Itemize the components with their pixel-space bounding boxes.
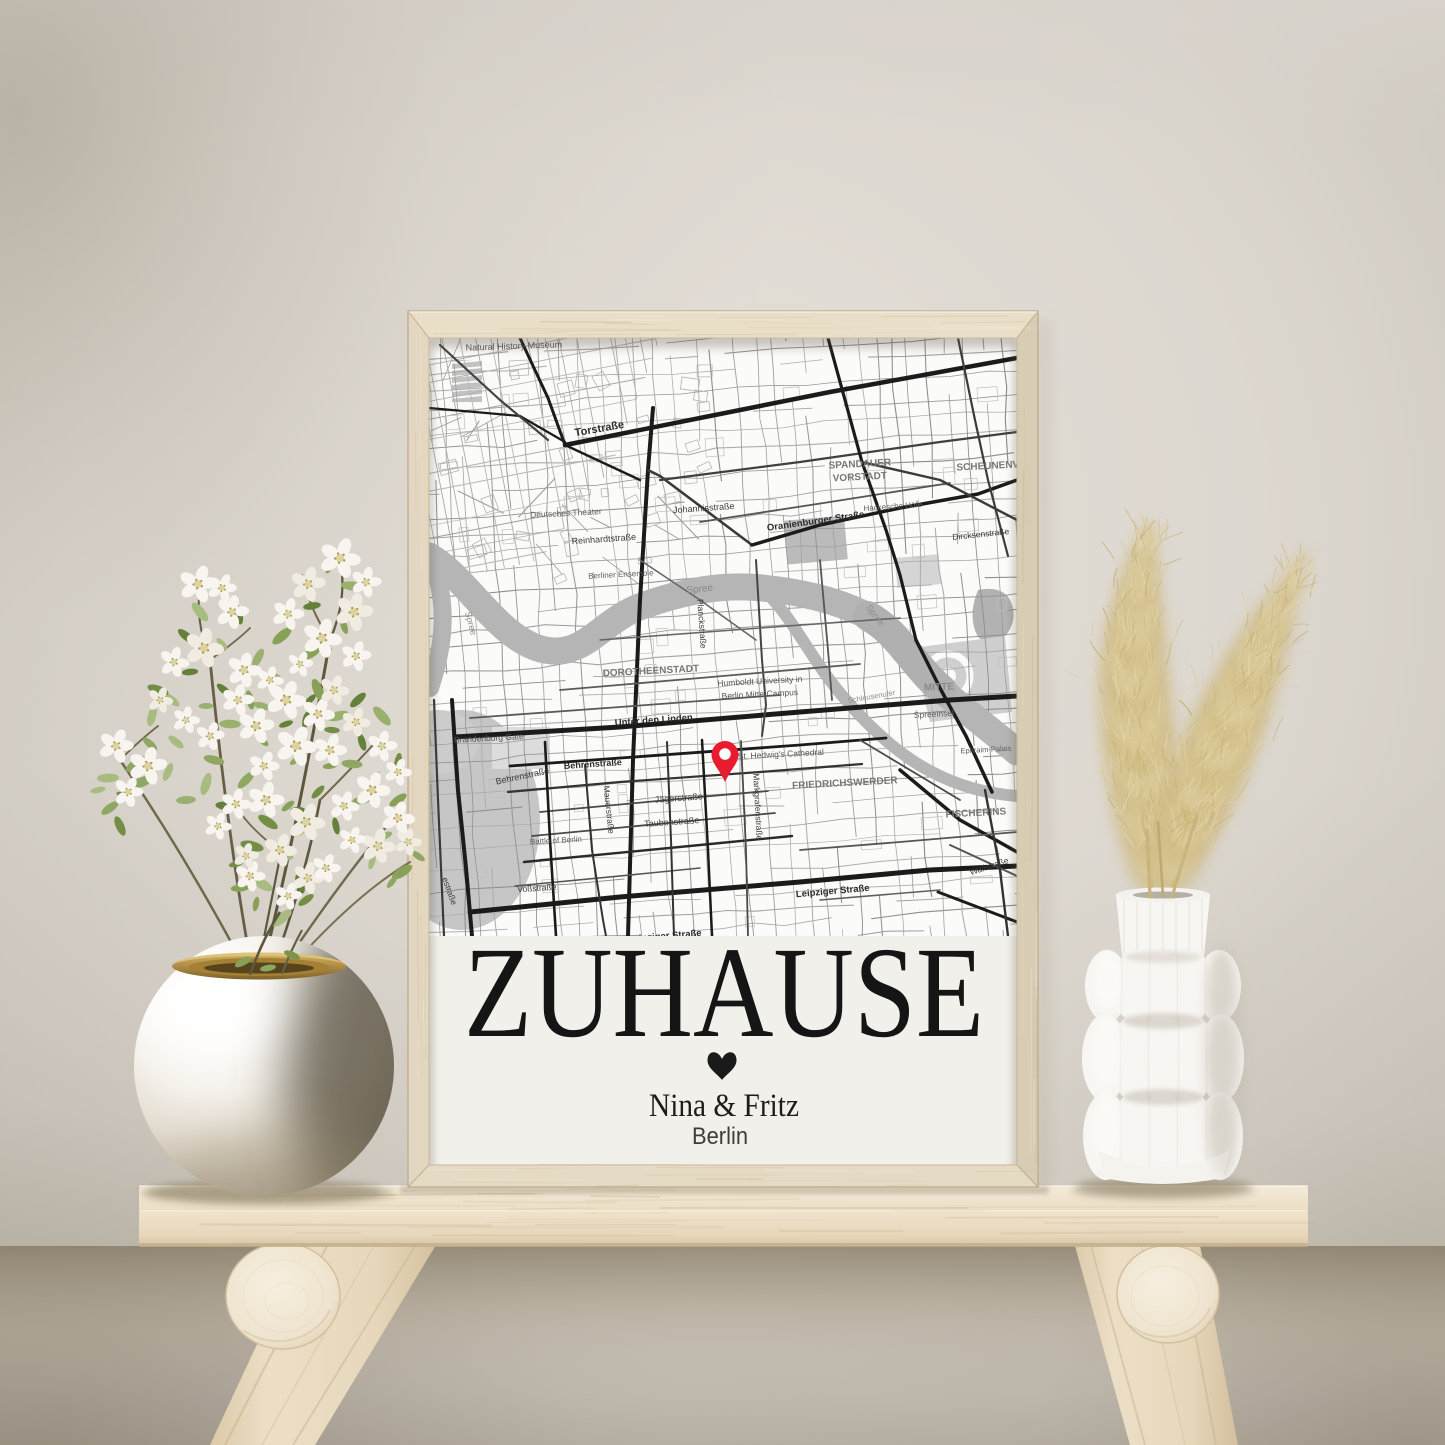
svg-text:Spreeinsel: Spreeinsel — [914, 708, 955, 720]
svg-text:MITTE: MITTE — [924, 681, 955, 693]
svg-text:Berlin: Berlin — [692, 1123, 748, 1150]
svg-text:Nina & Fritz: Nina & Fritz — [649, 1088, 799, 1124]
svg-text:ZUHAUSE: ZUHAUSE — [464, 921, 984, 1065]
